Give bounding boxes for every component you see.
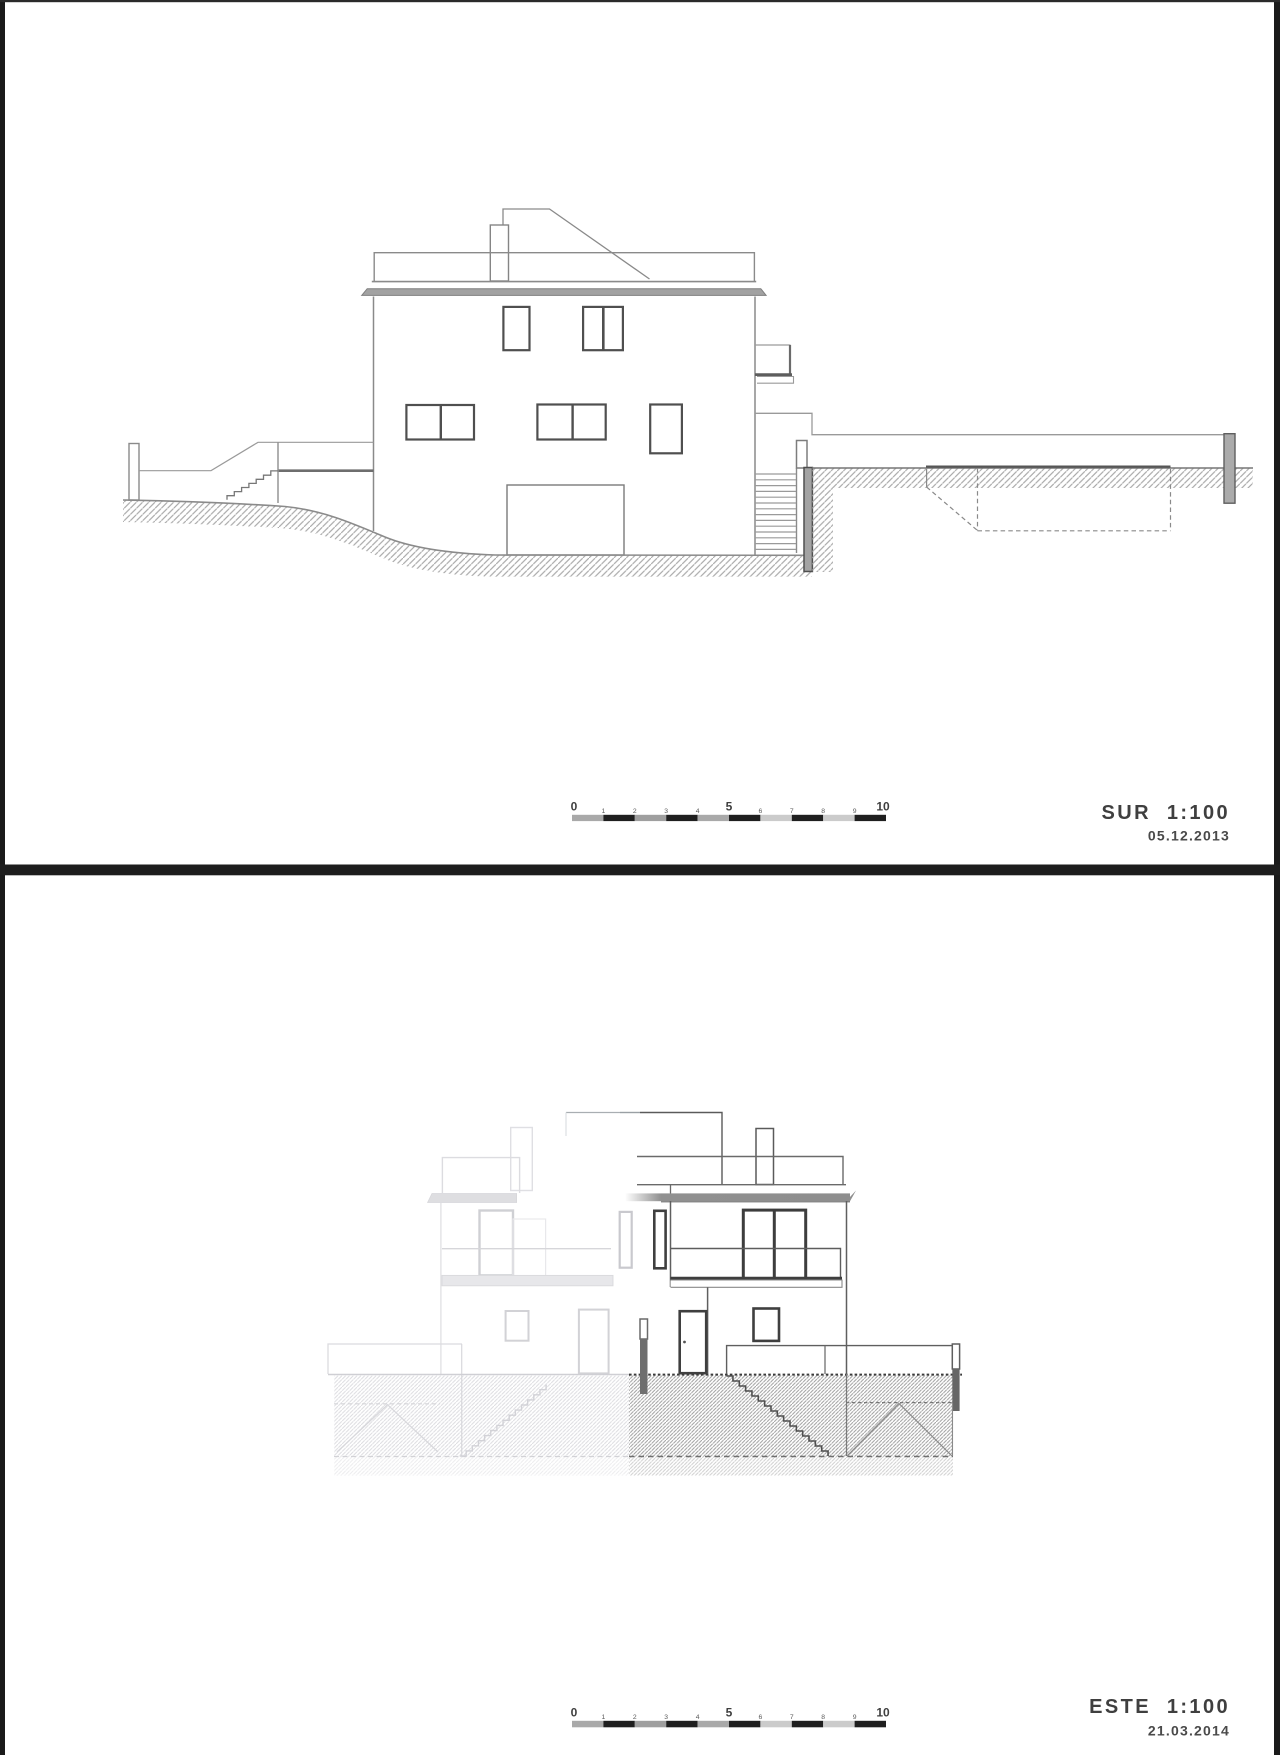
svg-text:4: 4 bbox=[696, 1714, 700, 1721]
svg-text:7: 7 bbox=[790, 808, 794, 815]
svg-text:0: 0 bbox=[571, 1706, 578, 1720]
svg-text:10: 10 bbox=[876, 1706, 890, 1720]
svg-text:1: 1 bbox=[602, 808, 606, 815]
svg-text:8: 8 bbox=[821, 1714, 825, 1721]
svg-text:5: 5 bbox=[726, 800, 733, 814]
svg-text:3: 3 bbox=[664, 808, 668, 815]
svg-text:SUR 1:100: SUR 1:100 bbox=[1102, 802, 1231, 824]
svg-text:9: 9 bbox=[853, 808, 857, 815]
svg-text:5: 5 bbox=[726, 1706, 733, 1720]
svg-text:7: 7 bbox=[790, 1714, 794, 1721]
svg-text:1: 1 bbox=[602, 1714, 606, 1721]
svg-text:9: 9 bbox=[853, 1714, 857, 1721]
svg-text:6: 6 bbox=[759, 1714, 763, 1721]
svg-text:21.03.2014: 21.03.2014 bbox=[1148, 1723, 1230, 1739]
svg-text:6: 6 bbox=[759, 808, 763, 815]
svg-text:8: 8 bbox=[821, 808, 825, 815]
svg-text:2: 2 bbox=[633, 808, 637, 815]
svg-text:0: 0 bbox=[571, 800, 578, 814]
svg-text:10: 10 bbox=[876, 800, 890, 814]
svg-text:2: 2 bbox=[633, 1714, 637, 1721]
svg-text:4: 4 bbox=[696, 808, 700, 815]
svg-text:05.12.2013: 05.12.2013 bbox=[1148, 828, 1230, 844]
svg-text:ESTE 1:100: ESTE 1:100 bbox=[1089, 1696, 1230, 1718]
svg-text:3: 3 bbox=[664, 1714, 668, 1721]
